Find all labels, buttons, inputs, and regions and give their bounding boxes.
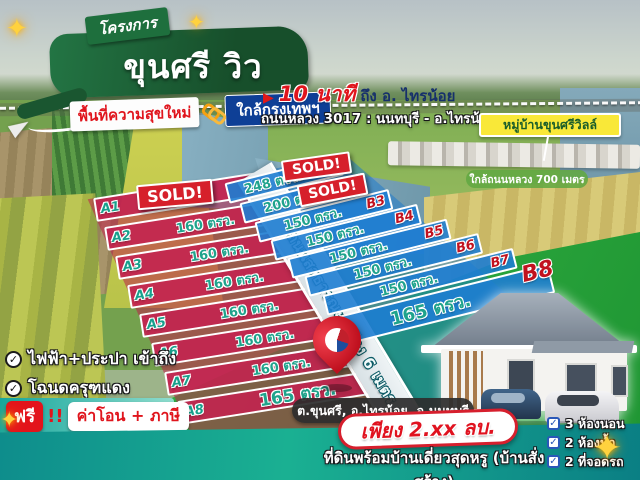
- highway-note: ถนนหลวง 3017 : นนทบุรี - อ.ไทรน้อย: [261, 107, 496, 129]
- perk-item: ✓ ไฟฟ้า+ประปา เข้าถึง: [5, 347, 176, 372]
- plot-label: B3: [365, 193, 387, 212]
- real-estate-poster: A1 A2160 ตรว. A3160 ตรว. A4160 ตรว. A516…: [0, 0, 640, 480]
- plot-label: A4: [134, 286, 155, 304]
- offer-price-pill: เพียง 2.xx ลบ.: [337, 408, 518, 450]
- checkbox-icon: ✓: [547, 436, 560, 449]
- plot-label: A5: [146, 315, 167, 333]
- sparkle-icon: ✦: [188, 10, 205, 34]
- map-pin-icon: [310, 316, 364, 396]
- travel-destination: ถึง อ. ไทรน้อย: [360, 84, 455, 108]
- play-arrow-icon: ▶: [263, 90, 274, 106]
- plot-label: B7: [489, 252, 511, 271]
- near-highway-pill: ใกล้ถนนหลวง 700 เมตร: [466, 170, 588, 188]
- carport-roof: [532, 341, 635, 353]
- sparkle-icon: ✦: [6, 14, 28, 44]
- offer-description: ที่ดินพร้อมบ้านเดี่ยวสุดหรู (บ้านสั่งสร้…: [306, 446, 562, 480]
- house-window: [611, 365, 628, 397]
- perk-label: ไฟฟ้า+ประปา เข้าถึง: [28, 347, 176, 372]
- offer-price: เพียง 2.xx ลบ.: [360, 411, 496, 448]
- village-houses-row: [388, 141, 640, 169]
- plot-label: B4: [393, 208, 415, 227]
- pin-hole: [325, 328, 349, 352]
- chain-link-icon: [202, 102, 223, 121]
- checkbox-icon: ✓: [547, 455, 560, 468]
- pin-shadow: [322, 384, 352, 392]
- village-callout: หมู่บ้านขุนศรีวิลล์: [479, 113, 621, 137]
- sparkle-icon: ✦: [592, 428, 622, 469]
- tagline-new-area: พื้นที่ความสุขใหม่: [70, 97, 200, 131]
- plot-label: A1: [100, 199, 121, 217]
- check-circle-icon: ✓: [5, 380, 22, 397]
- plot-label: B5: [423, 223, 445, 242]
- check-circle-icon: ✓: [5, 351, 22, 368]
- exclamation-marks: !!: [47, 406, 63, 427]
- plot-label: A3: [122, 257, 143, 275]
- checkbox-icon: ✓: [547, 417, 560, 430]
- plot-label: A7: [171, 373, 192, 391]
- plot-label: A2: [111, 228, 132, 246]
- sparkle-icon: ✦: [0, 408, 18, 433]
- plot-label: B6: [455, 237, 477, 256]
